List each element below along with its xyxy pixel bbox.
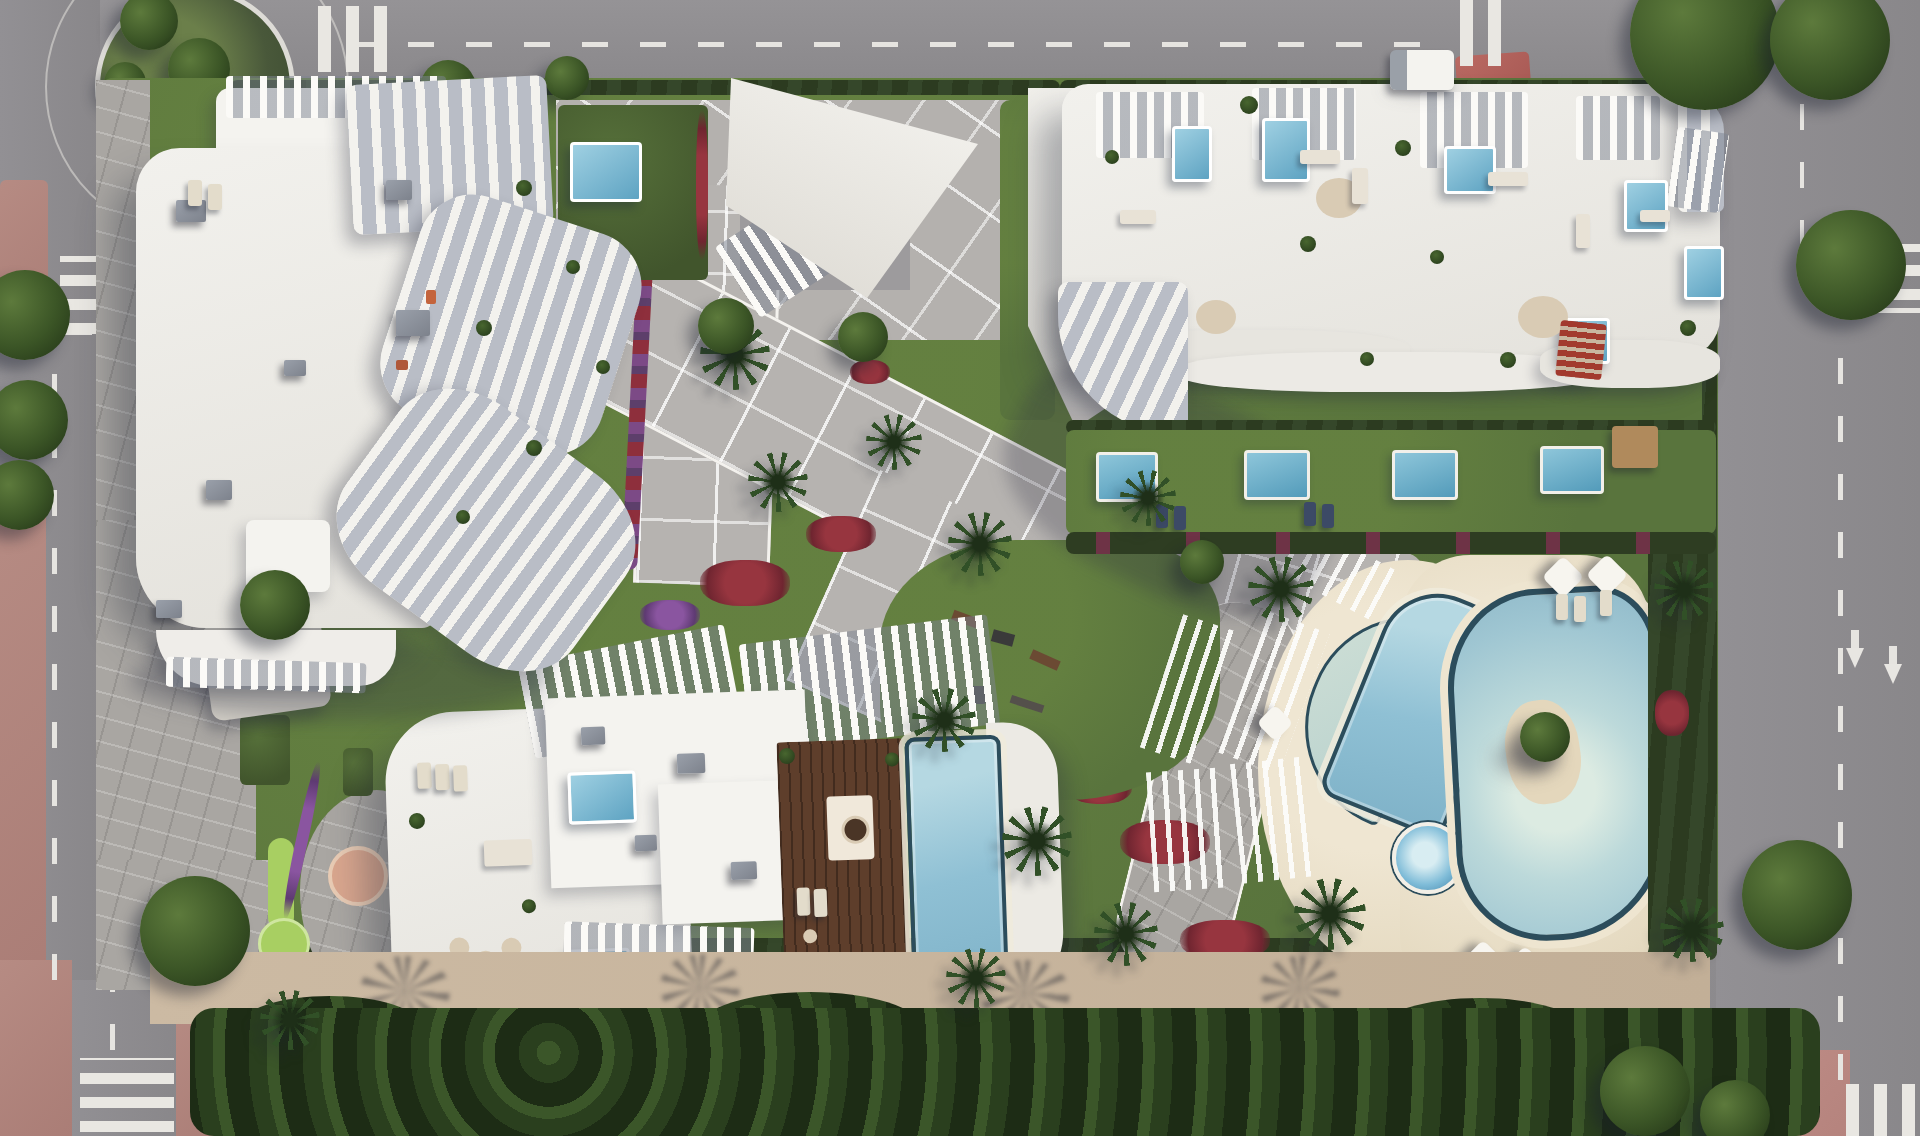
street-tree (1600, 1046, 1690, 1136)
garden-lounger (1322, 504, 1334, 528)
outdoor-sofa (1488, 172, 1528, 186)
garden-lounger (1174, 506, 1186, 530)
palm-tree (1002, 806, 1072, 876)
outdoor-sofa (1576, 214, 1590, 248)
sidewalk-southwest (0, 960, 72, 1136)
orange-chair (396, 360, 408, 370)
ac-unit (677, 753, 706, 774)
crosswalk-north-east (1460, 0, 1514, 66)
sun-lounger (1556, 594, 1568, 620)
ac-unit (156, 600, 182, 618)
garden-pool (1392, 450, 1458, 500)
roof-lounger (208, 184, 222, 210)
lane-dashes-east (1838, 340, 1843, 1080)
lounge-rug (1196, 300, 1236, 334)
sun-lounger (814, 889, 828, 917)
lane-dashes-west-south (110, 986, 115, 1050)
palm-tree (866, 414, 922, 470)
palm-tree (948, 512, 1012, 576)
balcony-plant (456, 510, 470, 524)
orange-chair (426, 290, 436, 304)
kids-pool (1392, 822, 1464, 894)
lane-dashes-north (350, 42, 1450, 47)
outdoor-sofa (1640, 210, 1670, 222)
palm-tree (1248, 556, 1314, 622)
garden-lounger (1304, 502, 1316, 526)
ac-unit (284, 360, 306, 376)
red-flower-bed (850, 360, 890, 384)
palm-tree (912, 688, 976, 752)
outdoor-dining-table (484, 839, 533, 867)
garden-tree (240, 570, 310, 640)
aerial-site-plan (0, 0, 1920, 1136)
palm-tree (1294, 878, 1366, 950)
island-plant (1520, 712, 1570, 762)
sidewalk-west (0, 510, 46, 990)
palm-tree (1094, 902, 1158, 966)
roof-garden-pool (570, 142, 642, 202)
roof-plant (1300, 236, 1316, 252)
palm-tree (260, 990, 320, 1050)
wavy-balcony-band (1180, 352, 1600, 392)
green-roof-amenity (240, 715, 290, 785)
road-arrow (1846, 648, 1864, 668)
palm-tree (748, 452, 808, 512)
sun-lounger (417, 762, 432, 788)
balcony-plant (566, 260, 580, 274)
roof-plant (1105, 150, 1119, 164)
flower-hedge (1066, 532, 1716, 554)
balcony-plant (596, 360, 610, 374)
street-tree (1742, 840, 1852, 950)
green-roof-amenity (343, 748, 373, 796)
peach-patio (328, 846, 388, 906)
roof-lounger (188, 180, 202, 206)
road-arrow (1884, 664, 1902, 684)
pool-trellis (1230, 756, 1318, 883)
roof-plant (1680, 320, 1696, 336)
balcony-plant (526, 440, 542, 456)
pergola-fins (166, 657, 367, 694)
lane-dashes-east-upper (1800, 96, 1804, 246)
ac-unit (581, 726, 606, 745)
palm-tree (1660, 898, 1724, 962)
road-arrow-stem (1851, 630, 1859, 650)
parked-truck (1390, 50, 1454, 90)
garden-dining-table (1612, 426, 1658, 468)
red-flower-line (696, 110, 708, 260)
roof-plant (1430, 250, 1444, 264)
ac-unit (731, 861, 758, 880)
sun-lounger (453, 765, 468, 791)
garden-pool (1244, 450, 1310, 500)
ac-unit (206, 480, 232, 500)
palm-tree (946, 948, 1006, 1008)
ac-unit (386, 180, 412, 200)
roof-plunge-pool (1684, 246, 1724, 300)
outdoor-sofa (1120, 210, 1156, 224)
garden-tree (140, 876, 250, 986)
crosswalk-southwest (80, 1058, 174, 1132)
garden-pool (1540, 446, 1604, 494)
outdoor-sofa (1300, 150, 1340, 164)
red-flower-bed (1655, 690, 1689, 736)
sun-lounger (1574, 596, 1586, 622)
roof-plunge-pool (1444, 146, 1496, 194)
building-a (96, 60, 716, 700)
palm-tree (1654, 560, 1714, 620)
roof-plant (1240, 96, 1258, 114)
roof-plant (1395, 140, 1411, 156)
red-striped-rug (1555, 320, 1607, 381)
palm-tree (1120, 470, 1176, 526)
sun-lounger (1600, 590, 1612, 616)
roof-plant (1360, 352, 1374, 366)
roof-plunge-pool (1624, 180, 1668, 232)
sun-lounger (435, 764, 450, 790)
ac-unit (396, 310, 430, 336)
road-arrow-stem (1889, 646, 1897, 666)
plunge-pool (567, 770, 637, 824)
roof-plant (1500, 352, 1516, 368)
outdoor-sofa (1352, 168, 1368, 204)
balcony-ribs (1058, 282, 1188, 434)
plaza-tree (698, 298, 754, 354)
balcony-plant (476, 320, 492, 336)
garden-tree (1180, 540, 1224, 584)
ac-unit (635, 835, 658, 852)
pergola-fins (1667, 127, 1730, 213)
street-tree (1796, 210, 1906, 320)
crosswalk-southeast (1846, 1084, 1920, 1136)
red-flower-bed (806, 516, 876, 552)
pergola-fins (1576, 96, 1660, 160)
south-tree-belt (190, 1008, 1820, 1136)
road-east (1716, 0, 1920, 1136)
balcony-plant (516, 180, 532, 196)
sun-lounger (796, 887, 810, 915)
plaza-tree (838, 312, 888, 362)
roof-plunge-pool (1172, 126, 1212, 182)
